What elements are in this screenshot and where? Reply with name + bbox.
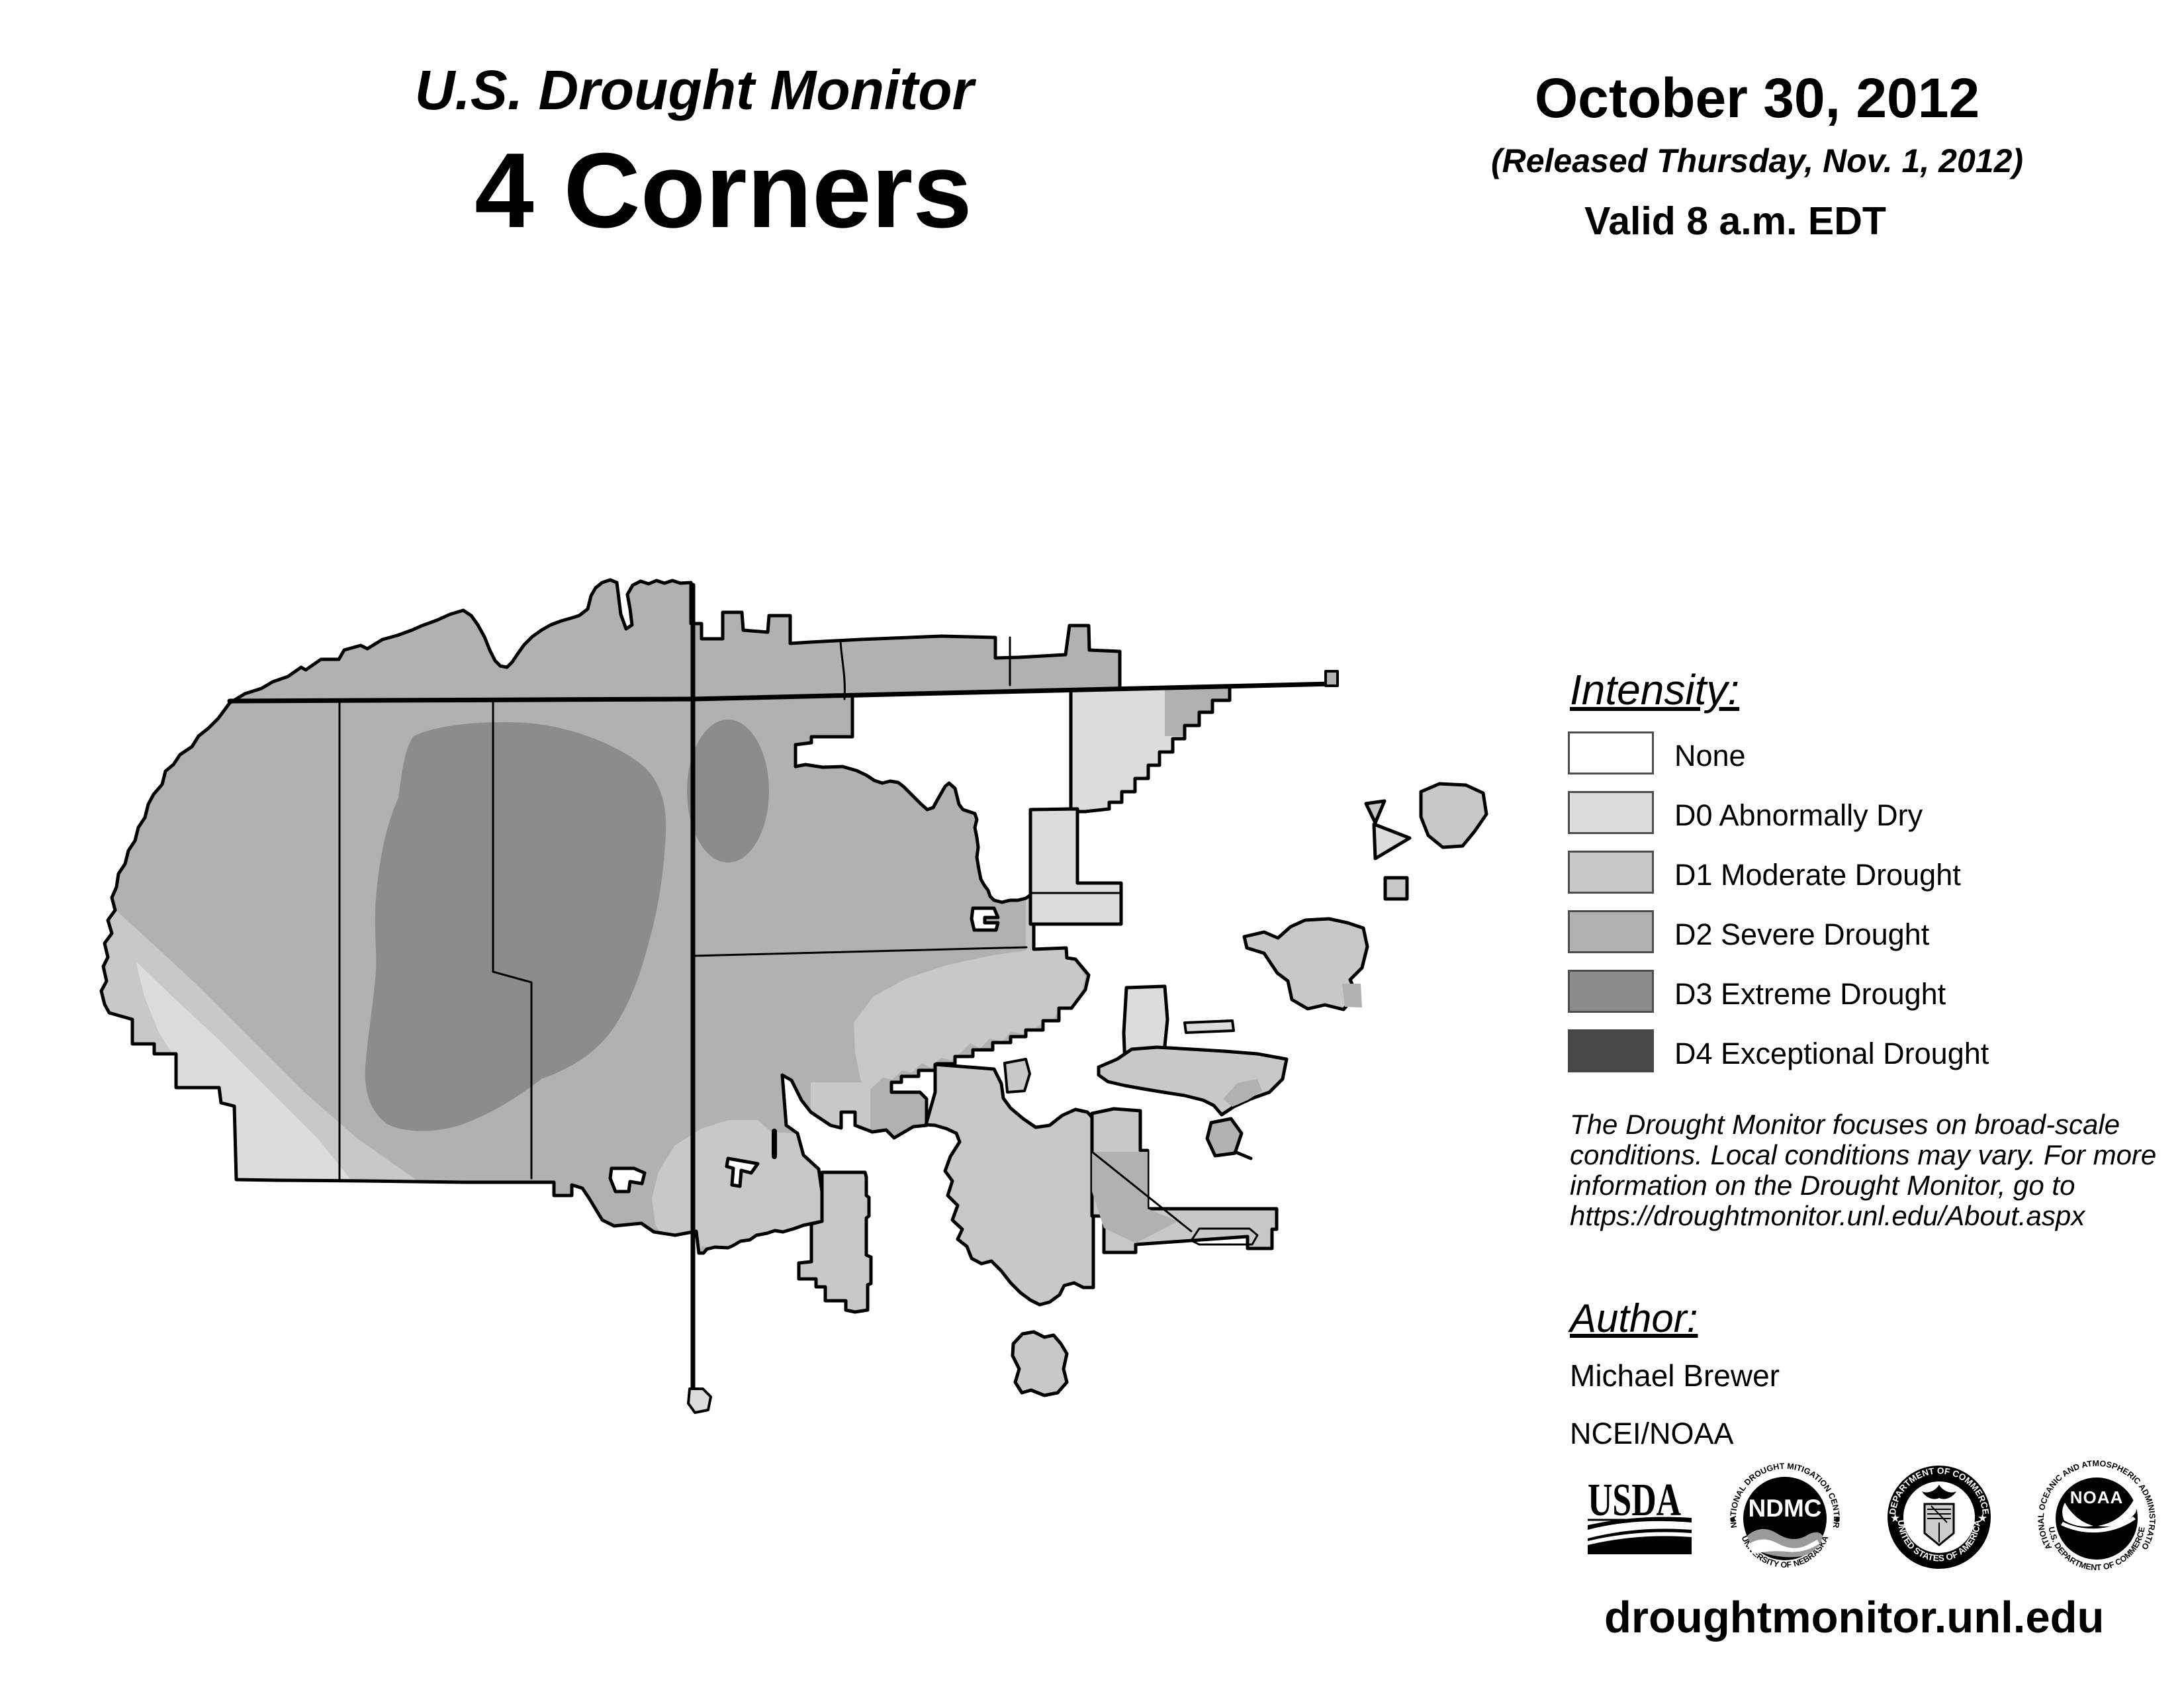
- svg-text:★: ★: [1978, 1512, 1987, 1524]
- svg-text:★: ★: [1890, 1512, 1900, 1524]
- svg-text:NOAA: NOAA: [2070, 1487, 2124, 1507]
- svg-text:NDMC: NDMC: [1749, 1495, 1822, 1522]
- svg-text:NATIONAL OCEANIC AND ATMOSPHER: NATIONAL OCEANIC AND ATMOSPHERIC ADMINIS…: [0, 0, 2157, 1552]
